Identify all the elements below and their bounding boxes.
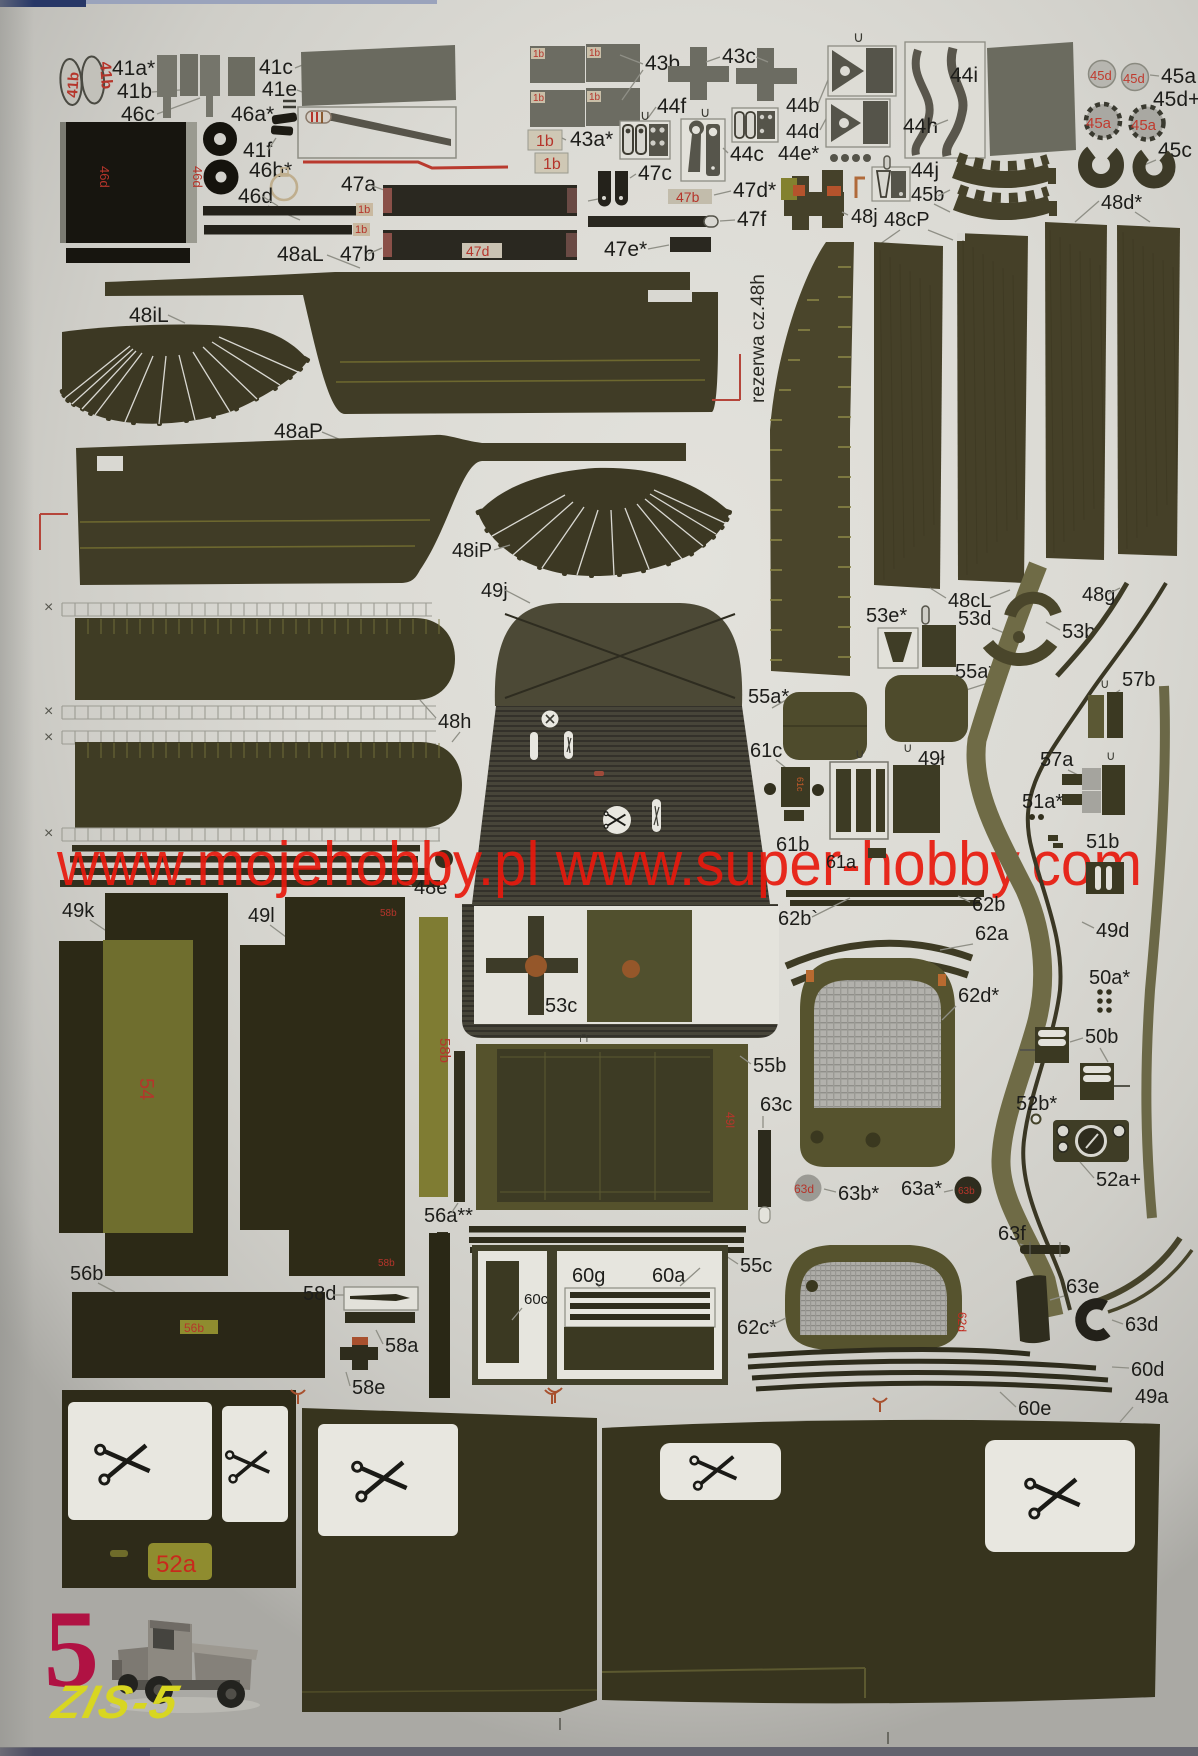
svg-text:×: × (44, 599, 53, 616)
svg-text:41b: 41b (117, 80, 152, 103)
svg-text:∪: ∪ (855, 746, 865, 761)
svg-text:58d: 58d (303, 1283, 336, 1305)
svg-text:60d: 60d (1131, 1359, 1164, 1381)
svg-text:62a: 62a (975, 923, 1009, 945)
svg-text:49j: 49j (481, 580, 508, 602)
svg-text:57a: 57a (1040, 749, 1074, 771)
svg-text:45a: 45a (1131, 117, 1157, 134)
svg-text:57b: 57b (1122, 669, 1155, 691)
svg-text:63b*: 63b* (838, 1183, 879, 1205)
svg-text:63f: 63f (998, 1223, 1026, 1245)
svg-text:∪: ∪ (640, 107, 650, 123)
svg-text:∪: ∪ (700, 104, 710, 120)
svg-text:1b: 1b (589, 92, 601, 103)
svg-text:47b: 47b (340, 243, 375, 266)
svg-text:48j: 48j (851, 206, 878, 228)
svg-text:46b*: 46b* (249, 159, 292, 182)
svg-text:44f: 44f (657, 95, 686, 118)
svg-text:62b: 62b (972, 894, 1005, 916)
svg-text:×: × (44, 825, 53, 842)
svg-text:60e: 60e (1018, 1398, 1051, 1420)
svg-text:55b: 55b (753, 1055, 786, 1077)
svg-text:61c: 61c (795, 777, 805, 792)
svg-text:61a: 61a (826, 852, 857, 872)
svg-text:41b: 41b (64, 71, 83, 98)
svg-text:1b: 1b (358, 204, 370, 216)
svg-text:55a*: 55a* (748, 686, 789, 708)
svg-text:58b: 58b (380, 908, 397, 919)
svg-text:∪: ∪ (1106, 748, 1116, 763)
svg-text:62b`: 62b` (778, 908, 818, 930)
svg-text:52a+: 52a+ (1096, 1169, 1141, 1191)
svg-text:48h: 48h (438, 711, 471, 733)
svg-text:47e*: 47e* (604, 238, 647, 261)
svg-text:49d: 49d (1096, 920, 1129, 942)
svg-text:52a: 52a (156, 1551, 197, 1578)
svg-text:46a*: 46a* (231, 103, 274, 126)
svg-text:∪: ∪ (903, 740, 913, 755)
svg-text:∪: ∪ (1100, 676, 1110, 691)
svg-text:ZIS-5: ZIS-5 (45, 1677, 185, 1729)
svg-text:41e: 41e (262, 78, 297, 101)
svg-text:63d: 63d (794, 1182, 814, 1196)
svg-text:53d: 53d (958, 608, 991, 630)
svg-text:46d: 46d (190, 166, 205, 188)
svg-text:56a**: 56a** (424, 1205, 473, 1227)
svg-text:44d: 44d (786, 121, 819, 143)
svg-text:49k: 49k (62, 900, 95, 922)
svg-text:54: 54 (135, 1078, 157, 1100)
svg-text:48iP: 48iP (452, 540, 492, 562)
svg-text:46d: 46d (238, 185, 273, 208)
svg-text:48g: 48g (1082, 584, 1115, 606)
svg-text:48iL: 48iL (129, 304, 169, 327)
svg-text:47b: 47b (676, 189, 700, 205)
svg-text:45a: 45a (1161, 65, 1196, 88)
svg-text:53e*: 53e* (866, 605, 907, 627)
svg-text:45d: 45d (1090, 68, 1112, 83)
svg-text:49l: 49l (248, 905, 275, 927)
svg-text:58b: 58b (378, 1258, 395, 1269)
svg-text:48d*: 48d* (1101, 192, 1142, 214)
svg-text:50a*: 50a* (1089, 967, 1130, 989)
svg-text:×: × (44, 729, 53, 746)
svg-text:47d: 47d (466, 243, 489, 259)
svg-text:46d: 46d (97, 166, 112, 188)
svg-text:52b*: 52b* (1016, 1093, 1057, 1115)
svg-text:1b: 1b (355, 224, 367, 236)
svg-text:www.mojehobby.pl www.super-hob: www.mojehobby.pl www.super-hobby.com (56, 830, 1142, 899)
svg-text:58b: 58b (436, 1038, 453, 1063)
svg-text:1b: 1b (533, 93, 545, 104)
svg-text:×: × (44, 703, 53, 720)
svg-text:49a: 49a (1135, 1386, 1169, 1408)
svg-text:53c: 53c (545, 995, 577, 1017)
svg-text:48cP: 48cP (884, 209, 930, 231)
svg-text:43c: 43c (722, 45, 756, 68)
svg-text:1b: 1b (533, 49, 545, 60)
svg-text:60c: 60c (524, 1291, 549, 1308)
svg-text:44e*: 44e* (778, 143, 819, 165)
svg-text:61c: 61c (750, 740, 782, 762)
svg-text:58e: 58e (352, 1377, 385, 1399)
svg-text:63c: 63c (760, 1094, 792, 1116)
svg-text:63a*: 63a* (901, 1178, 942, 1200)
svg-text:1b: 1b (536, 133, 554, 150)
svg-text:rezerwa cz.48h: rezerwa cz.48h (748, 274, 769, 403)
svg-text:49l: 49l (723, 1112, 737, 1128)
svg-text:63b: 63b (958, 1186, 975, 1197)
svg-text:43a*: 43a* (570, 128, 613, 151)
svg-text:45a: 45a (1086, 115, 1112, 132)
svg-text:49ł: 49ł (918, 748, 945, 770)
svg-text:41a*: 41a* (112, 57, 155, 80)
svg-text:56b: 56b (184, 1321, 204, 1335)
svg-text:1b: 1b (543, 156, 561, 173)
svg-text:61b: 61b (776, 834, 809, 856)
svg-text:48aL: 48aL (277, 243, 324, 266)
svg-text:1b: 1b (589, 48, 601, 59)
svg-text:55c: 55c (740, 1255, 772, 1277)
svg-text:47d*: 47d* (733, 179, 776, 202)
svg-text:63d: 63d (1125, 1314, 1158, 1336)
svg-text:∩: ∩ (578, 1029, 590, 1046)
svg-text:∪: ∪ (853, 29, 864, 46)
svg-text:51b: 51b (1086, 831, 1119, 853)
svg-text:44b: 44b (786, 95, 819, 117)
svg-text:45d+: 45d+ (1153, 88, 1198, 111)
svg-text:44c: 44c (730, 143, 764, 166)
svg-text:51a*: 51a* (1022, 791, 1063, 813)
svg-text:58a: 58a (385, 1335, 419, 1357)
svg-text:56b: 56b (70, 1263, 103, 1285)
svg-text:41c: 41c (259, 56, 293, 79)
svg-text:47f: 47f (737, 208, 766, 231)
svg-text:62d: 62d (955, 1312, 969, 1332)
svg-text:45d: 45d (1123, 71, 1145, 86)
svg-text:47a: 47a (341, 173, 376, 196)
svg-text:62c*: 62c* (737, 1317, 777, 1339)
svg-text:50b: 50b (1085, 1026, 1118, 1048)
svg-text:44h: 44h (903, 115, 938, 138)
svg-text:60g: 60g (572, 1265, 605, 1287)
svg-text:47c: 47c (638, 162, 672, 185)
svg-text:63e: 63e (1066, 1276, 1099, 1298)
svg-text:60a: 60a (652, 1265, 686, 1287)
svg-text:44i: 44i (950, 64, 978, 87)
svg-text:44j: 44j (911, 159, 939, 182)
svg-text:62d*: 62d* (958, 985, 999, 1007)
